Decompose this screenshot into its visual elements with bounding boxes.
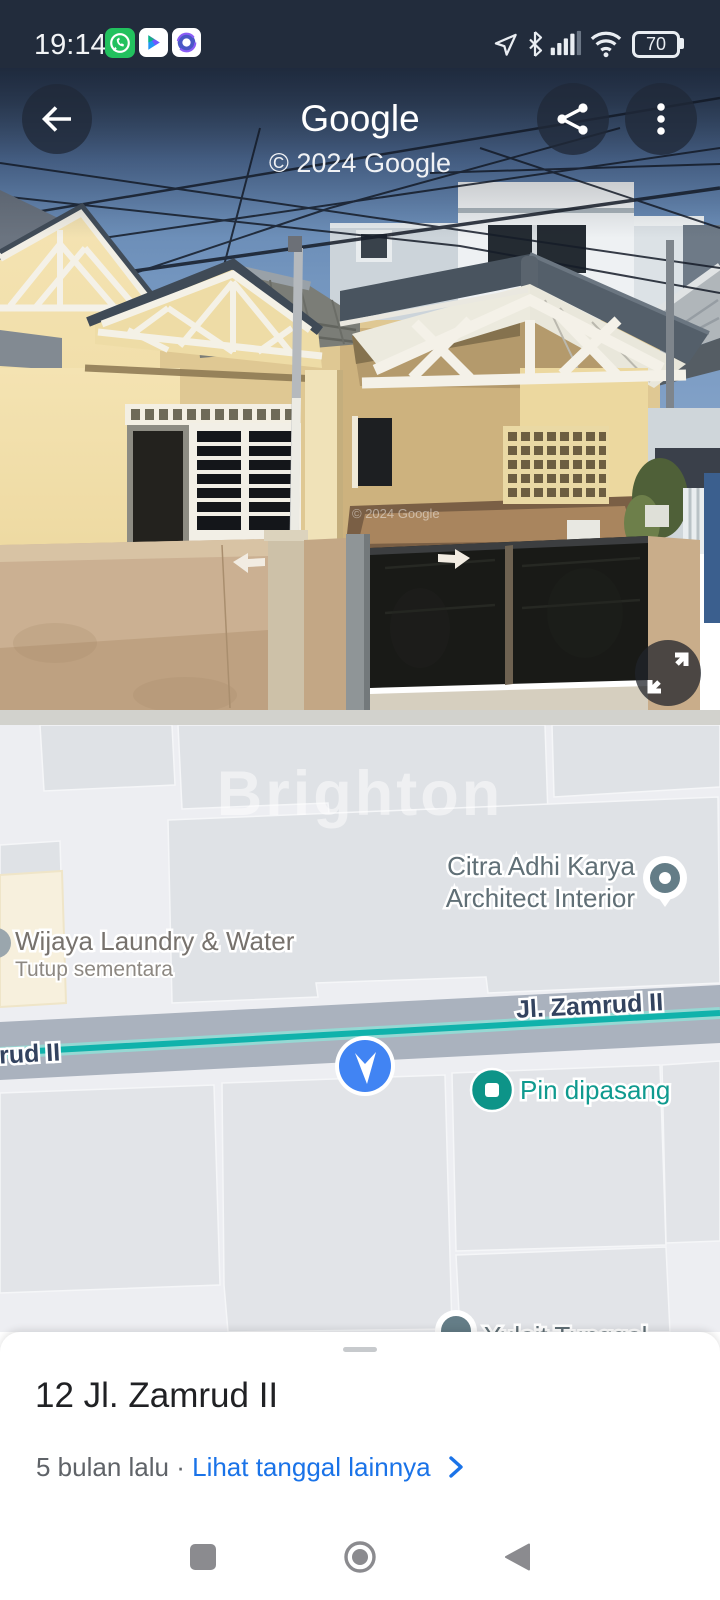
svg-text:Wijaya Laundry & Water: Wijaya Laundry & Water	[15, 926, 295, 956]
svg-text:Brighton: Brighton	[217, 759, 503, 829]
svg-text:Yulait Tunggal: Yulait Tunggal	[484, 1321, 647, 1332]
svg-text:Tutup sementara: Tutup sementara	[15, 958, 173, 981]
svg-text:Architect Interior: Architect Interior	[446, 883, 636, 913]
svg-text:© 2024 Google: © 2024 Google	[352, 506, 440, 521]
svg-text:rud II: rud II	[0, 1038, 61, 1069]
svg-text:Citra Adhi Karya: Citra Adhi Karya	[447, 851, 635, 881]
svg-text:Pin dipasang: Pin dipasang	[520, 1075, 670, 1105]
